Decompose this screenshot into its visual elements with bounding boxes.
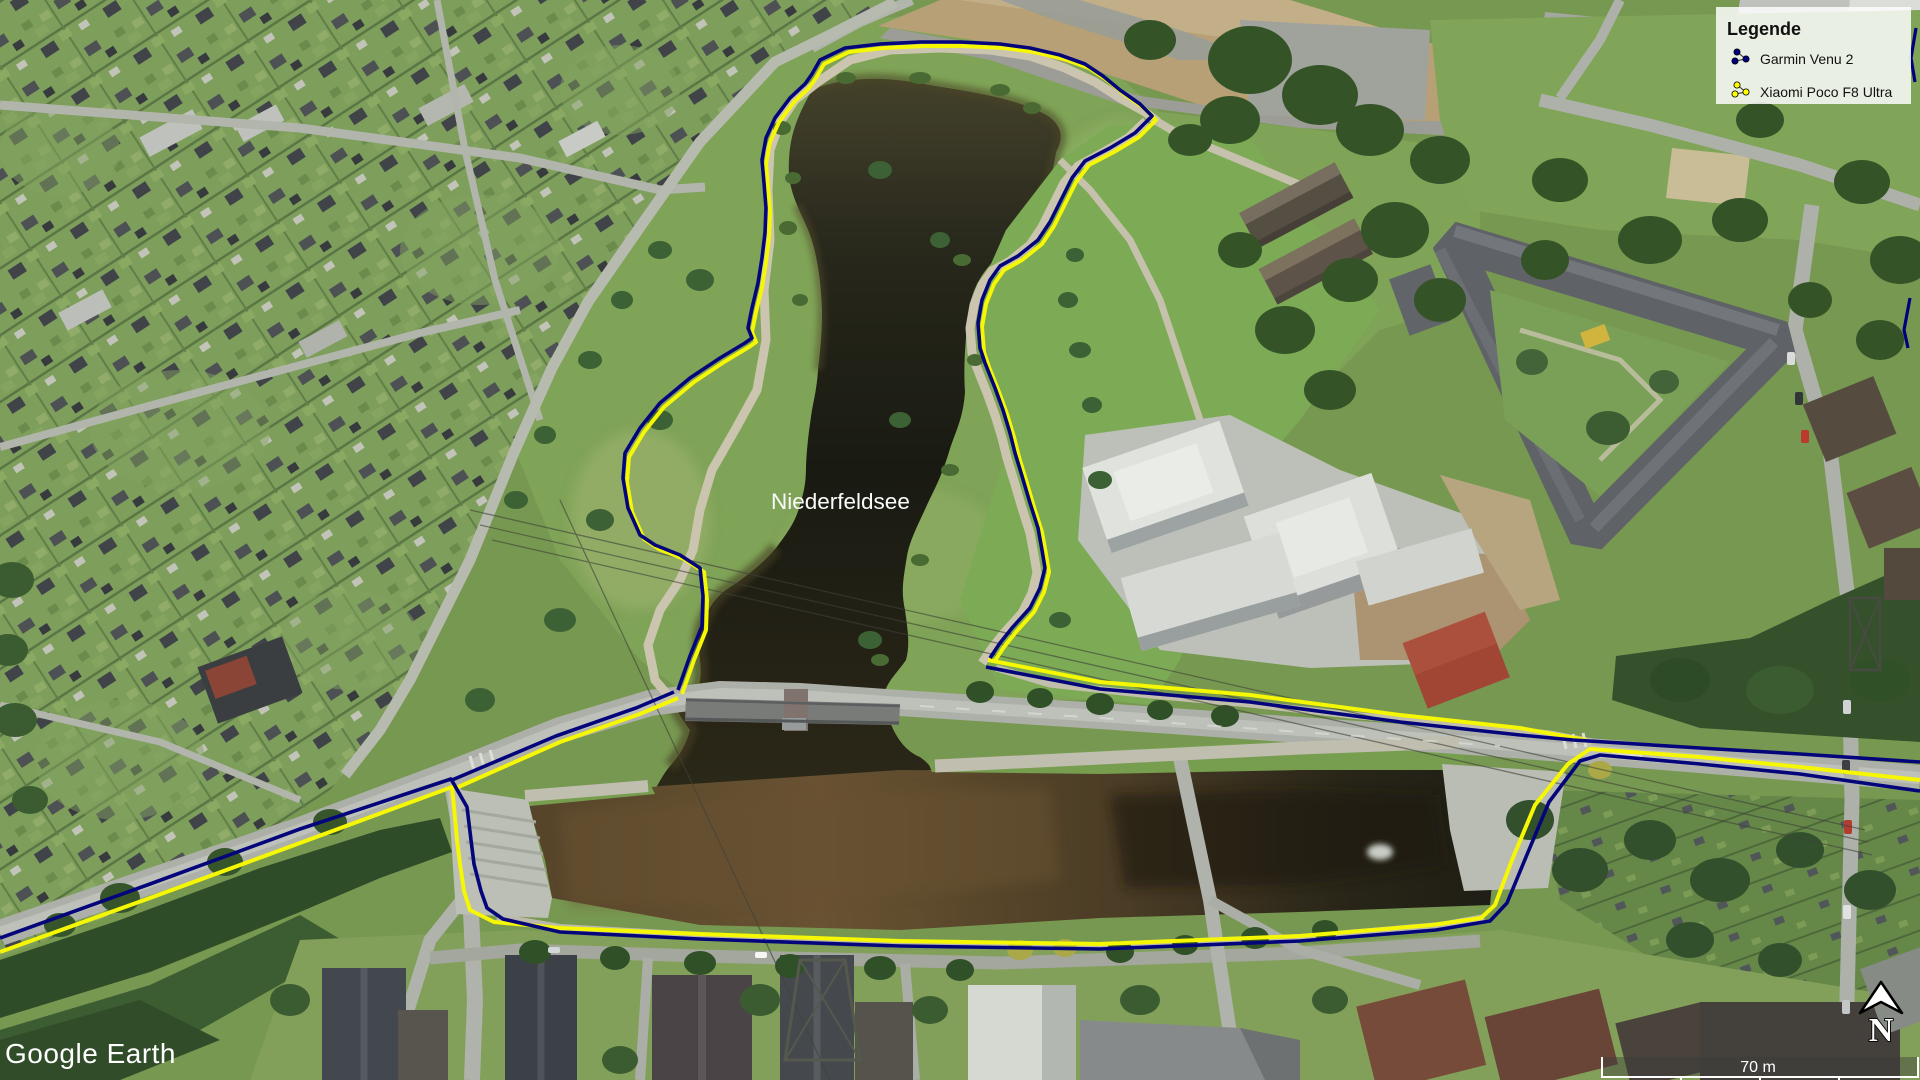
- svg-text:Garmin Venu 2: Garmin Venu 2: [1760, 51, 1854, 67]
- svg-text:N: N: [1869, 1012, 1894, 1049]
- svg-text:Legende: Legende: [1727, 19, 1801, 39]
- svg-text:Niederfeldsee: Niederfeldsee: [771, 489, 910, 514]
- svg-text:Xiaomi Poco F8 Ultra: Xiaomi Poco F8 Ultra: [1760, 84, 1892, 100]
- svg-text:70 m: 70 m: [1740, 1059, 1776, 1076]
- svg-text:Google Earth: Google Earth: [5, 1038, 176, 1069]
